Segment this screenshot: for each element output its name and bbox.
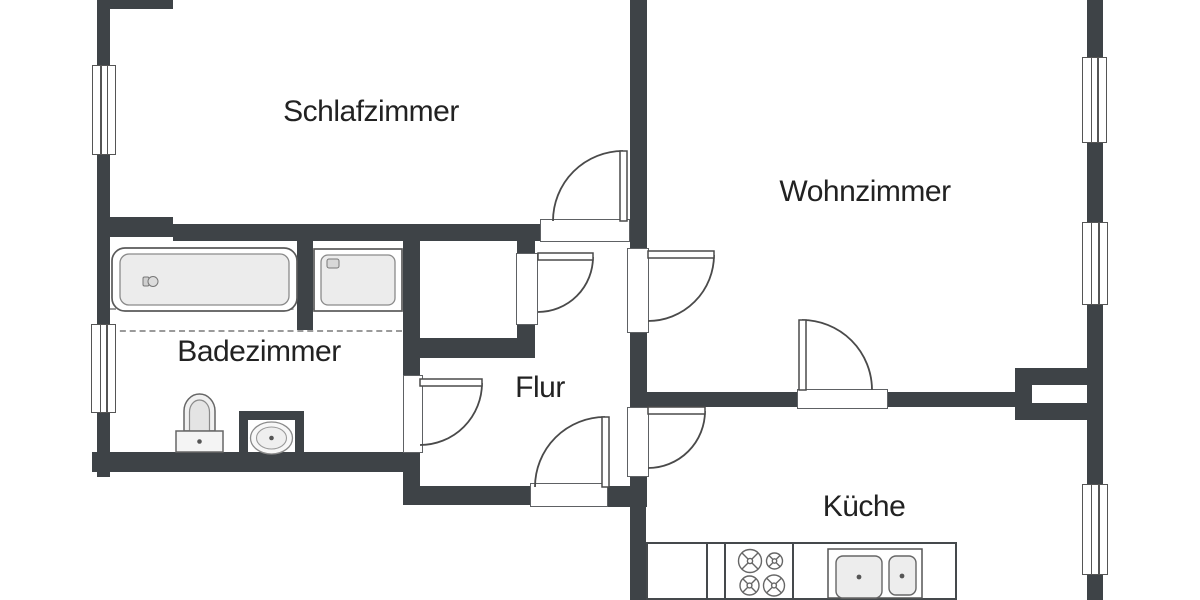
wall-schlafzimmer-bottom-b [173, 224, 540, 241]
door-arc-kueche [648, 411, 705, 468]
wall-right-mid2 [1087, 305, 1103, 484]
wall-center-middle [630, 333, 647, 393]
window-mullion [1091, 58, 1093, 142]
door-leaf-entry [602, 417, 609, 487]
bath-tile-strip [110, 308, 402, 332]
window-wohnzimmer-right-2 [1082, 222, 1108, 305]
door-leaf-wohnzimmer [648, 251, 714, 258]
wall-flur-bottom [418, 486, 530, 505]
wall-wohnzimmer-kueche-left [630, 392, 797, 407]
wall-closet-bottom [415, 338, 535, 358]
bathtub-icon [112, 248, 297, 311]
window-mullion [1091, 485, 1093, 574]
room-label-flur: Flur [515, 371, 565, 405]
door-opening-closet [516, 253, 538, 325]
door-opening-schlafzimmer [540, 219, 630, 242]
window-mullion [100, 66, 102, 154]
kitchen-counter-divider [706, 542, 708, 600]
window-kueche-right [1082, 484, 1108, 575]
door-leaf-kueche [648, 407, 705, 414]
door-opening-entry [530, 483, 608, 507]
kitchen-counter [646, 542, 957, 600]
symbols-layer [0, 0, 1200, 600]
wall-left-middle [97, 155, 110, 324]
door-arc-entry [535, 417, 605, 487]
wall-center-bottom [630, 507, 646, 600]
door-arc-badezimmer [420, 383, 482, 445]
window-mullion [1098, 223, 1100, 304]
wall-right-bottom [1087, 575, 1103, 600]
window-mullion [100, 325, 102, 412]
window-mullion [1098, 485, 1100, 574]
door-leaf-closet [538, 253, 593, 260]
window-mullion [106, 325, 108, 412]
stove-box [724, 542, 794, 600]
room-label-schlafzimmer: Schlafzimmer [283, 95, 459, 129]
door-arc-closet [538, 257, 593, 312]
wall-schlafzimmer-bottom-a [97, 217, 173, 237]
door-leaf-schlafzimmer [620, 151, 627, 221]
window-mullion [1097, 58, 1099, 142]
room-label-wohnzimmer: Wohnzimmer [779, 175, 950, 209]
window-badezimmer-left [91, 324, 116, 413]
door-leaf-badezimmer [420, 379, 482, 386]
door-opening-kueche [627, 407, 649, 477]
door-arc-wohnzimmer-kueche [802, 320, 872, 390]
shower-icon [314, 249, 402, 311]
wall-center-top [630, 0, 647, 248]
door-opening-badezimmer [403, 375, 423, 453]
wall-right-upper [1087, 0, 1103, 57]
window-wohnzimmer-right-1 [1082, 57, 1107, 143]
door-opening-wohnzimmer-kueche [797, 389, 888, 409]
wall-entry-block [607, 486, 647, 507]
window-schlafzimmer-left [92, 65, 116, 155]
wall-tub-shower-divider [297, 241, 313, 330]
room-label-badezimmer: Badezimmer [177, 335, 340, 369]
door-leaf-wohnzimmer-kueche [799, 320, 806, 390]
wall-right-mid1 [1087, 143, 1103, 222]
washbasin-icon [239, 411, 304, 457]
window-mullion [107, 66, 109, 154]
door-arc-wohnzimmer [648, 255, 714, 321]
wall-bad-bottom [92, 452, 420, 472]
wall-left-upper [97, 0, 110, 65]
chimney-slot [1032, 385, 1087, 403]
toilet-icon [176, 394, 223, 452]
door-opening-wohnzimmer [627, 248, 649, 333]
door-arc-schlafzimmer [553, 151, 623, 221]
floor-plan: Schlafzimmer Wohnzimmer Badezimmer Flur … [0, 0, 1200, 600]
room-label-kueche: Küche [823, 490, 906, 524]
wall-wohnzimmer-kueche-right [888, 392, 1015, 407]
window-mullion [1091, 223, 1093, 304]
